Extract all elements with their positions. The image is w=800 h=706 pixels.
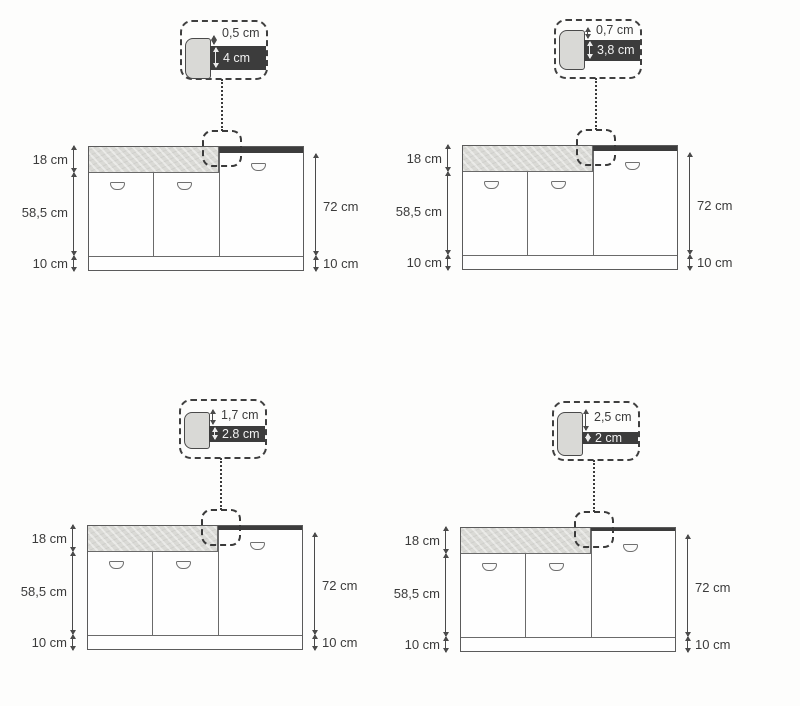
drawer-height-label: 18 cm	[20, 152, 68, 167]
dimension-arrow-icon	[447, 255, 448, 270]
door-divider	[153, 173, 154, 256]
dimension-arrow-icon	[687, 535, 688, 636]
diagram-bottom-right: 2,5 cm 2 cm 18 cm 58,5 cm 10 cm 72 cm 10…	[390, 389, 755, 679]
callout-connector-line	[593, 460, 595, 512]
thickness-dimension-arrow-icon	[214, 428, 215, 439]
detail-callout: 0,7 cm 3,8 cm	[554, 19, 642, 79]
reveal-gap-label: 2,5 cm	[594, 411, 632, 424]
callout-connector-line	[595, 78, 597, 130]
door-divider	[152, 552, 153, 635]
right-door-height-label: 72 cm	[697, 198, 732, 213]
worktop-thickness-label: 2.8 cm	[222, 426, 260, 442]
diagram-bottom-left: 1,7 cm 2.8 cm 18 cm 58,5 cm 10 cm 72 cm …	[17, 387, 382, 677]
gap-dimension-arrow-icon	[587, 28, 588, 38]
door-divider	[593, 151, 594, 255]
dimension-arrow-icon	[445, 637, 446, 652]
gap-dimension-arrow-icon	[212, 410, 213, 424]
door-handle-icon	[251, 163, 266, 171]
drawer-band	[88, 526, 218, 552]
dimension-arrow-icon	[445, 527, 446, 553]
door-handle-icon	[549, 563, 564, 571]
drawer-height-label: 18 cm	[394, 151, 442, 166]
door-height-label: 58,5 cm	[392, 586, 440, 601]
thickness-dimension-arrow-icon	[215, 48, 216, 67]
diagram-top-right: 0,7 cm 3,8 cm 18 cm 58,5 cm 10 cm 72 cm …	[392, 7, 757, 297]
door-divider	[527, 172, 528, 255]
reveal-gap-label: 0,7 cm	[596, 24, 634, 37]
zoom-region-marker	[576, 129, 616, 166]
plinth-height-label: 10 cm	[394, 255, 442, 270]
drawer-band	[89, 147, 219, 173]
right-door-height-label: 72 cm	[695, 580, 730, 595]
reveal-gap-label: 0,5 cm	[222, 27, 260, 40]
thickness-dimension-arrow-icon	[589, 42, 590, 58]
callout-connector-line	[221, 79, 223, 131]
plinth-line	[463, 255, 677, 256]
door-handle-icon	[482, 563, 497, 571]
cabinet-outline	[87, 525, 303, 650]
drawer-band	[463, 146, 593, 172]
worktop-thickness-label: 2 cm	[595, 432, 622, 444]
door-edge-profile	[559, 30, 585, 70]
detail-callout: 2,5 cm 2 cm	[552, 401, 640, 461]
plinth-line	[461, 637, 675, 638]
dimension-arrow-icon	[73, 256, 74, 271]
worktop-thickness-label: 4 cm	[223, 46, 250, 70]
plinth-line	[88, 635, 302, 636]
diagram-top-left: 0,5 cm 4 cm 18 cm 58,5 cm 10 cm 72 cm 10…	[18, 8, 383, 298]
thickness-dimension-arrow-icon	[587, 434, 588, 441]
door-handle-icon	[551, 181, 566, 189]
plinth-height-label: 10 cm	[323, 256, 358, 271]
door-edge-profile	[557, 412, 583, 456]
dimension-arrow-icon	[314, 635, 315, 650]
right-door-height-label: 72 cm	[322, 578, 357, 593]
door-handle-icon	[110, 182, 125, 190]
plinth-height-label: 10 cm	[392, 637, 440, 652]
door-handle-icon	[623, 544, 638, 552]
dimension-arrow-icon	[447, 145, 448, 171]
plinth-height-label: 10 cm	[322, 635, 357, 650]
gap-dimension-arrow-icon	[213, 36, 214, 44]
dimension-arrow-icon	[447, 172, 448, 254]
door-handle-icon	[484, 181, 499, 189]
cabinet-outline	[462, 145, 678, 270]
zoom-region-marker	[202, 130, 242, 167]
dimension-arrow-icon	[73, 173, 74, 255]
dimension-arrow-icon	[72, 635, 73, 650]
drawer-height-label: 18 cm	[19, 531, 67, 546]
door-handle-icon	[625, 162, 640, 170]
dimension-arrow-icon	[445, 554, 446, 636]
door-divider	[219, 153, 220, 256]
dimension-arrow-icon	[72, 552, 73, 634]
dimension-arrow-icon	[689, 153, 690, 254]
dimension-arrow-icon	[315, 154, 316, 255]
dimension-arrow-icon	[689, 255, 690, 270]
door-handle-icon	[177, 182, 192, 190]
dimension-arrow-icon	[314, 533, 315, 634]
door-height-label: 58,5 cm	[394, 204, 442, 219]
gap-dimension-arrow-icon	[585, 410, 586, 430]
plinth-height-label: 10 cm	[19, 635, 67, 650]
plinth-line	[89, 256, 303, 257]
door-height-label: 58,5 cm	[20, 205, 68, 220]
dimension-arrow-icon	[73, 146, 74, 172]
door-height-label: 58,5 cm	[19, 584, 67, 599]
worktop-thickness-label: 3,8 cm	[597, 40, 635, 61]
callout-connector-line	[220, 458, 222, 510]
zoom-region-marker	[574, 511, 614, 548]
door-handle-icon	[109, 561, 124, 569]
detail-callout: 0,5 cm 4 cm	[180, 20, 268, 80]
zoom-region-marker	[201, 509, 241, 546]
door-edge-profile	[184, 412, 210, 449]
drawer-height-label: 18 cm	[392, 533, 440, 548]
dimension-arrow-icon	[687, 637, 688, 652]
cabinet-outline	[460, 527, 676, 652]
reveal-gap-label: 1,7 cm	[221, 409, 259, 422]
door-divider	[525, 554, 526, 637]
door-handle-icon	[176, 561, 191, 569]
detail-callout: 1,7 cm 2.8 cm	[179, 399, 267, 459]
plinth-height-label: 10 cm	[20, 256, 68, 271]
dimension-arrow-icon	[315, 256, 316, 271]
door-edge-profile	[185, 38, 211, 79]
right-door-height-label: 72 cm	[323, 199, 358, 214]
dimension-arrow-icon	[72, 525, 73, 551]
door-handle-icon	[250, 542, 265, 550]
plinth-height-label: 10 cm	[697, 255, 732, 270]
plinth-height-label: 10 cm	[695, 637, 730, 652]
diagram-canvas: 0,5 cm 4 cm 18 cm 58,5 cm 10 cm 72 cm 10…	[0, 0, 800, 706]
cabinet-outline	[88, 146, 304, 271]
drawer-band	[461, 528, 591, 554]
